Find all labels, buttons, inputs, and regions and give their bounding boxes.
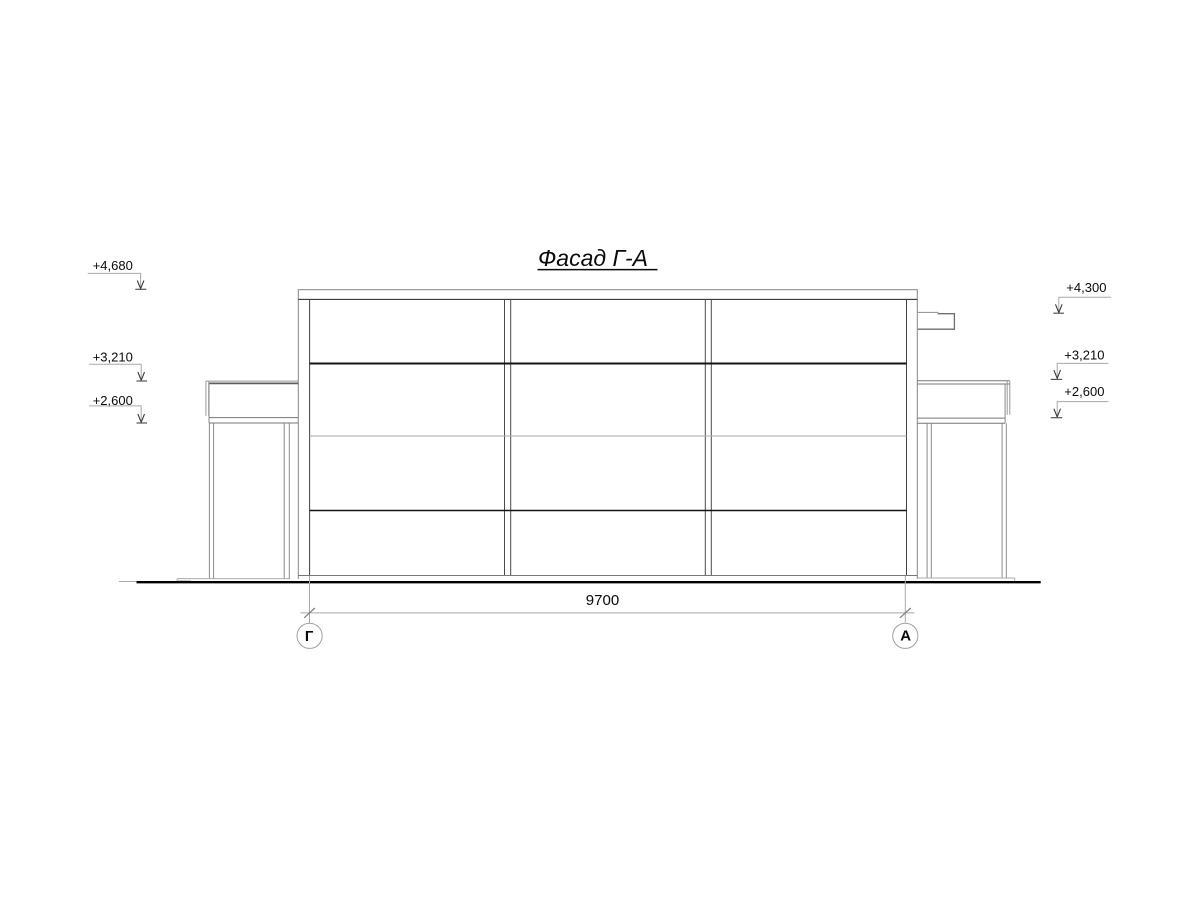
svg-text:+3,210: +3,210: [1064, 348, 1104, 363]
svg-text:А: А: [900, 628, 911, 645]
svg-text:+2,600: +2,600: [1064, 384, 1104, 399]
svg-text:Г: Г: [305, 628, 314, 645]
svg-text:Фасад Г-А: Фасад Г-А: [538, 245, 648, 271]
svg-text:+4,300: +4,300: [1066, 280, 1106, 295]
svg-text:+4,680: +4,680: [93, 258, 133, 273]
svg-text:+3,210: +3,210: [93, 349, 133, 364]
svg-text:9700: 9700: [586, 592, 619, 609]
